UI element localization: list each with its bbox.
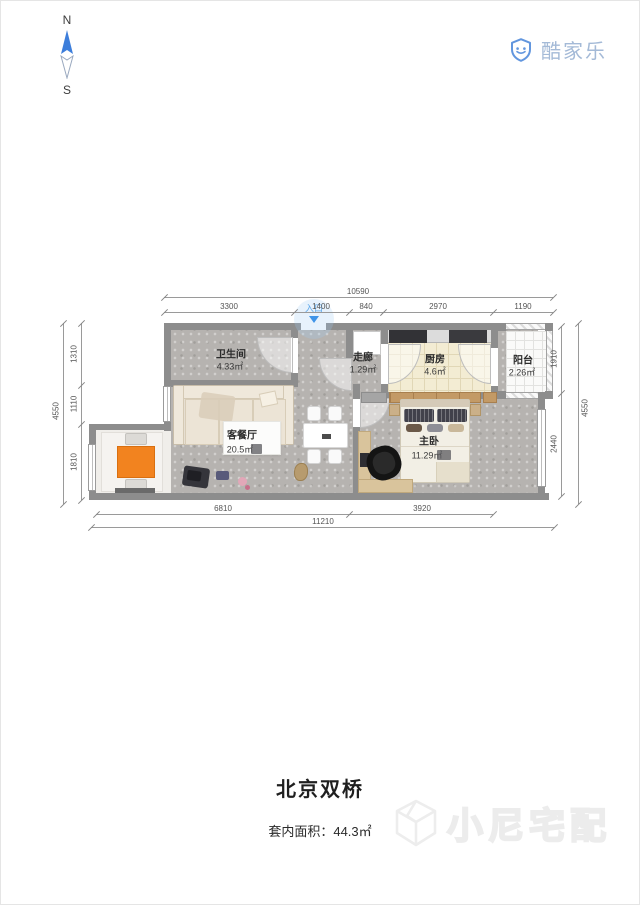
toy-item-detail xyxy=(187,470,202,482)
kujiale-logo: 酷家乐 xyxy=(508,35,607,64)
bedroom-door-opening xyxy=(353,399,360,427)
dim-line-top-segments xyxy=(164,312,553,313)
dim-line-left-segments xyxy=(81,323,82,500)
floorplan-page: N S 酷家乐 xyxy=(0,0,640,905)
dim-tick xyxy=(558,493,565,500)
bed-pillow xyxy=(404,409,434,422)
balcony-door-opening xyxy=(491,348,498,386)
dim-left-seg-0: 1310 xyxy=(70,345,79,363)
room-label-bedroom: 主卧 xyxy=(419,433,439,448)
kitchen-sink xyxy=(449,330,487,343)
nightstand-right xyxy=(470,404,481,416)
dining-table xyxy=(303,423,348,448)
toy-item xyxy=(182,465,211,488)
watermark: 小尼宅配 xyxy=(393,797,611,849)
room-label-kitchen: 厨房 xyxy=(425,351,445,366)
room-area-living: 20.5㎡ xyxy=(227,443,254,456)
bedroom-shelf-right xyxy=(483,392,497,403)
wall-bottom xyxy=(89,493,549,500)
room-label-bathroom: 卫生间 xyxy=(216,346,246,361)
dining-chair xyxy=(328,406,342,421)
dim-tick xyxy=(490,511,497,518)
dim-tick xyxy=(550,309,557,316)
balcony-post xyxy=(498,391,506,399)
wall-bedroom-left-a xyxy=(353,384,360,399)
dim-top-seg-2: 840 xyxy=(359,302,372,311)
compass: N S xyxy=(47,13,87,99)
wall-top-left xyxy=(164,323,301,330)
dim-top-seg-4: 1190 xyxy=(514,302,531,311)
balcony-post xyxy=(545,391,553,399)
compass-north-label: N xyxy=(63,13,72,27)
watermark-text: 小尼宅配 xyxy=(447,797,611,849)
annex-media-bar xyxy=(115,488,155,493)
wall-top-right xyxy=(326,323,498,330)
orange-table xyxy=(117,446,155,478)
label-sticker xyxy=(437,450,451,460)
window-annex-left xyxy=(88,444,96,491)
table-centerpiece xyxy=(322,434,331,439)
dining-chair xyxy=(307,406,321,421)
dim-tick xyxy=(550,294,557,301)
compass-needle-icon xyxy=(58,29,76,79)
dim-line-right-segments xyxy=(561,326,562,496)
dim-tick xyxy=(575,501,582,508)
dim-bottom-total: 11210 xyxy=(312,517,334,526)
accent-pillow xyxy=(427,424,443,432)
room-area-balcony: 2.26㎡ xyxy=(509,366,536,379)
dim-left-seg-2: 1810 xyxy=(70,453,79,471)
room-area-corridor: 1.29㎡ xyxy=(350,363,377,376)
desk-horizontal xyxy=(358,479,413,493)
floor-cushion xyxy=(216,471,229,480)
bed-blanket xyxy=(436,462,469,482)
wall-kitchen-right-a xyxy=(491,323,498,348)
logo-badge-icon xyxy=(508,37,534,63)
dim-right-seg-1: 2440 xyxy=(550,435,559,453)
kitchen-door-opening xyxy=(381,344,388,384)
dim-bottom-seg-1: 3920 xyxy=(413,504,431,513)
dim-line-right-total xyxy=(578,323,579,504)
dim-bottom-seg-0: 6810 xyxy=(214,504,232,513)
room-label-corridor: 走廊 xyxy=(353,349,373,364)
dim-line-bottom-total xyxy=(91,527,554,528)
bed-pillow xyxy=(437,409,467,422)
room-area-kitchen: 4.6㎡ xyxy=(424,365,446,378)
bedroom-cabinet-left xyxy=(361,392,387,403)
dim-top-seg-0: 3300 xyxy=(220,302,238,311)
balcony-post xyxy=(545,323,553,331)
room-label-balcony: 阳台 xyxy=(513,352,533,367)
dim-top-seg-3: 2970 xyxy=(429,302,447,311)
wall-kitchen-left-b xyxy=(381,384,388,392)
window-bedroom-right xyxy=(537,409,546,487)
desk-chair-seat xyxy=(370,449,398,477)
entrance-arrow-icon xyxy=(309,316,319,323)
dry-plant xyxy=(294,463,308,481)
dim-top-seg-1: 1400 xyxy=(312,302,330,311)
sofa-blanket xyxy=(198,392,235,422)
dim-tick xyxy=(60,501,67,508)
dim-top-total: 10590 xyxy=(347,287,369,296)
watermark-cube-icon xyxy=(393,798,439,848)
kitchen-stove xyxy=(389,330,427,343)
nightstand-left xyxy=(389,404,400,416)
window-living-left xyxy=(163,386,171,422)
flower-decor xyxy=(238,477,247,486)
compass-south-label: S xyxy=(63,83,71,97)
wall-corridor-stub xyxy=(346,330,353,358)
wall-kitchen-left-a xyxy=(381,330,388,344)
dim-left-seg-1: 1110 xyxy=(70,396,79,413)
dim-line-bottom-segments xyxy=(96,514,493,515)
sofa-arm-left xyxy=(174,386,184,444)
room-label-living: 客餐厅 xyxy=(227,427,257,442)
room-area-bathroom: 4.33㎡ xyxy=(217,360,244,373)
logo-text: 酷家乐 xyxy=(541,35,607,64)
label-sticker xyxy=(251,444,262,454)
dining-chair xyxy=(307,449,321,464)
wall-annex-top xyxy=(89,424,171,430)
dim-tick xyxy=(551,524,558,531)
annex-chair-top xyxy=(125,433,147,445)
dim-right-total: 4550 xyxy=(581,399,590,417)
bed-headboard xyxy=(401,400,469,407)
dining-chair xyxy=(328,449,342,464)
dim-tick xyxy=(78,497,85,504)
dim-line-left-total xyxy=(63,323,64,504)
balcony-post xyxy=(498,323,506,331)
dim-left-total: 4550 xyxy=(52,402,61,420)
accent-pillow xyxy=(448,424,464,432)
accent-pillow xyxy=(406,424,422,432)
dim-right-seg-0: 1910 xyxy=(550,350,559,368)
dim-line-top-total xyxy=(164,297,553,298)
